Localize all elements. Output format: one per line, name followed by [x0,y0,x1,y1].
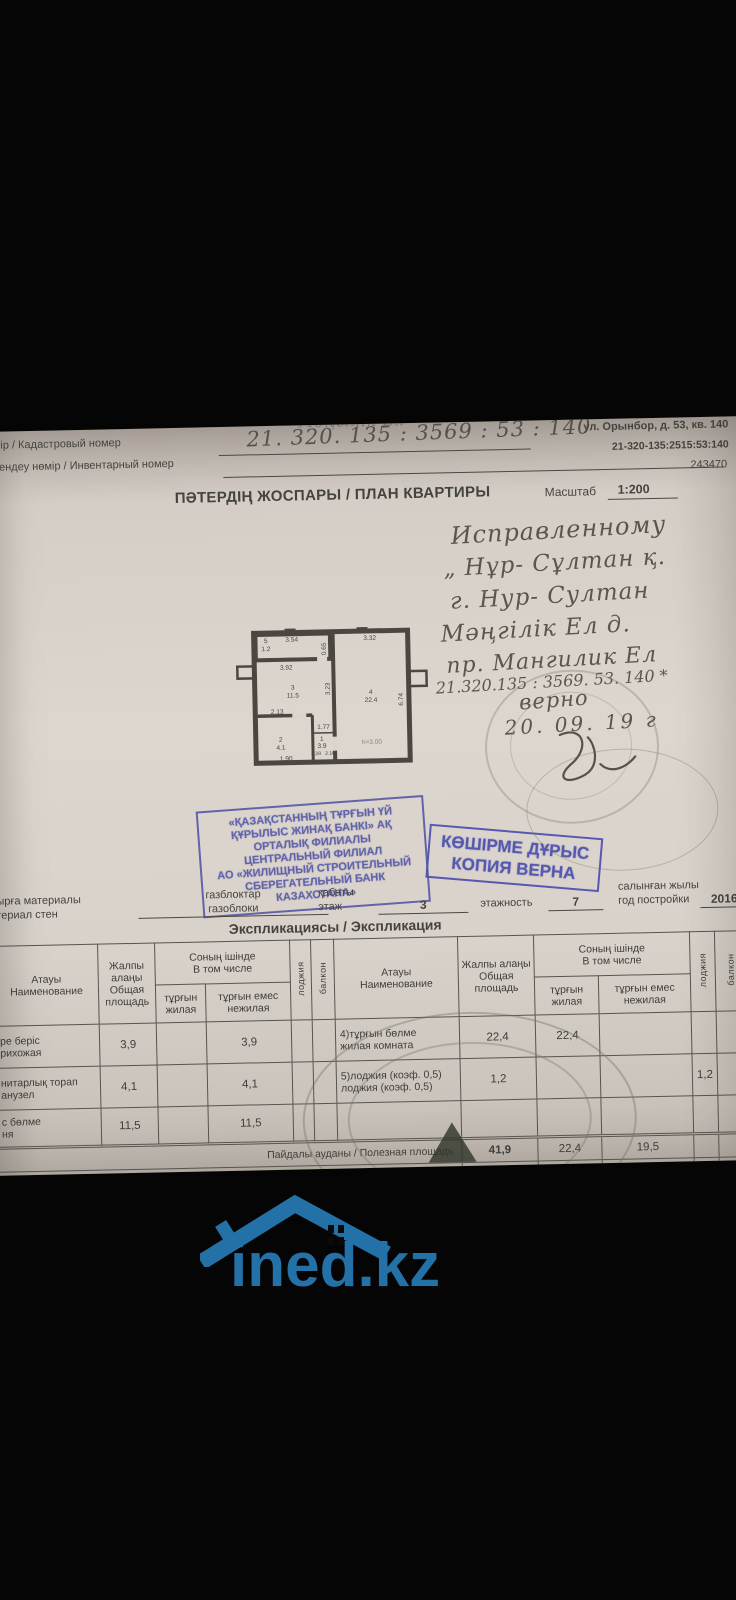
plan-dim: 3.54 [285,636,298,643]
total-living: 22,4 [538,1160,602,1176]
copy-stamp-line-kz: КӨШІРМЕ ДҰРЫС [440,831,591,864]
plan-dim: 3.23 [325,682,332,695]
header-name-kz: Атауы [381,966,411,979]
storeys-total-value: 7 [548,894,603,911]
header-name-kz: Атауы [31,973,61,986]
header-nonliving-kz: тұрғын емес [614,981,674,994]
wall-material-ru: газоблоки [138,900,328,919]
stamp-emblem-triangle [428,1122,477,1163]
header-nonliving-ru: нежилая [624,993,666,1006]
plan-room-area: 3.9 [317,743,327,750]
wall-material-kz: газблоктар [173,887,293,904]
year-built-label-kz: салынған жылы [618,878,699,894]
scale-value: 1:200 [617,482,649,497]
total-area-cell [461,1099,538,1139]
header-loggia: лоджия [696,953,709,988]
storey-label-ru: этаж [318,899,354,914]
plan-dim: 2.13 [271,709,284,716]
balcony-cell [314,1103,338,1141]
balcony-cell [716,1011,736,1054]
wall-material-label-kz: бырға материалы [0,893,81,909]
header-incl-ru: В том числе [193,962,252,975]
living-area-cell [157,1064,208,1107]
room-name-cell [337,1101,462,1142]
plan-room-number: 1 [320,736,324,743]
nonliving-area-cell [600,1054,693,1098]
copy-correct-stamp: КӨШІРМЕ ДҰРЫС КОПИЯ ВЕРНА [425,824,603,892]
storeys-total-number: 7 [572,895,579,909]
useful-area-balcony [719,1133,736,1158]
col-header-nonliving-right: тұрғын емеснежилая [598,974,691,1014]
col-header-name-right: АтауыНаименование [333,937,459,1020]
handwritten-date: 20. 09. 19 г [504,707,659,740]
col-header-balcony-right: балкон [714,931,736,1012]
table-row: с бөлменя 11,5 11,5 [0,1095,736,1149]
room-name-kz: ре беріс [0,1034,40,1047]
address-line: ул. Орынбор, д. 53, кв. 140 [583,418,728,433]
handwritten-line: пр. Мангилик Ел [446,642,658,679]
plan-room-number: 4 [369,689,373,696]
logo-text: ined.kz [230,1230,440,1301]
plan-height-label: h=3.00 [362,739,383,746]
useful-area-living: 22,4 [538,1136,602,1161]
nonliving-area-cell [601,1096,694,1136]
total-nonliving: 19,5 [602,1158,694,1176]
header-total-ru: Общая площадь [105,983,149,1008]
year-built-number: 2016 [711,891,736,906]
wall-material-label: бырға материалы атериал стен [0,893,81,923]
nonliving-area-cell: 3,9 [206,1020,292,1064]
explication-title: Экспликациясы / Экспликация [229,916,442,936]
header-living-ru: жилая [551,995,582,1008]
year-built-field: салынған жылы год постройки [618,878,699,908]
loggia-cell [691,1011,717,1054]
storeys-total-label: этажность [480,896,533,911]
total-label: Қорытынды / Итого [0,1163,463,1176]
faint-stamp-arc [525,747,720,873]
bank-stamp-line: ҚҰРЫЛЫС ЖИНАҚ БАНКІ» АҚ [207,817,415,845]
plan-room-number: 2 [279,737,283,744]
bank-stamp: «ҚАЗАҚСТАННЫҢ ТҰРҒЫН ҮЙ ҚҰРЫЛЫС ЖИНАҚ БА… [196,795,431,918]
plan-dim: 3.32 [363,635,376,642]
col-header-living-right: тұрғынжилая [534,976,599,1015]
useful-area-row: Пайдалы ауданы / Полезная площадь 41,9 2… [0,1133,736,1173]
header-total-kz: Жалпы алаңы [109,959,144,984]
bank-stamp-line: ЦЕНТРАЛЬНЫЙ ФИЛИАЛ [209,843,417,871]
copy-stamp-line-ru: КОПИЯ ВЕРНА [438,852,589,885]
handwritten-line: „ Нұр- Сұлтан қ. [443,544,667,582]
living-area-cell [158,1106,209,1145]
wall-material-label-ru: атериал стен [0,907,81,923]
balcony-cell [718,1095,736,1134]
total-area-cell: 11,5 [101,1107,159,1146]
storey-value: 3 [378,897,468,915]
col-header-balcony-left: балкон [310,939,335,1019]
plan-dim: 6.74 [398,692,405,705]
storey-label-kz: қабаты [318,885,354,900]
header-nonliving-ru: нежилая [227,1002,269,1015]
header-total-kz: Жалпы алаңы [461,957,530,970]
room-name-ru: лоджия (коэф. 0,5) [341,1080,433,1094]
header-loggia: лоджия [294,961,307,996]
col-header-loggia-left: лоджия [290,940,313,1020]
balcony-cell [717,1053,736,1096]
total-loggia: 1,2 [694,1157,719,1176]
wall-material-value: газблоктар газоблоки [173,887,294,919]
header-living-ru: жилая [166,1003,197,1016]
room-name-ru: жилая комната [340,1039,413,1053]
storey-number: 3 [420,898,427,912]
faint-round-stamp-inner [509,690,633,801]
table-row: нитарлық торапанузел 4,1 4,1 5)лоджия (к… [0,1053,736,1111]
explication-table: АтауыНаименование Жалпы алаңыОбщая площа… [0,930,736,1176]
header-nonliving-kz: тұрғын емес [218,989,278,1002]
floor-plan-drawing: 5 1.2 3.54 0.65 3.92 3 11.5 3.23 2.13 2 … [228,609,431,781]
living-area-cell [156,1022,207,1065]
page-title: ПӘТЕРДІҢ ЖОСПАРЫ / ПЛАН КВАРТИРЫ [175,483,491,507]
header-incl-ru: В том числе [582,954,641,967]
plan-dim: 2.10 [325,751,335,757]
plan-dim: 3.92 [280,665,293,672]
printed-cadastral-number: 21-320-135:2515:53:140 [612,438,729,452]
header-balcony: балкон [724,953,736,985]
scale-label: Масштаб [545,484,597,499]
cadastral-number-label: нөмір / Кадастровый номер [0,437,121,452]
balcony-cell [313,1061,337,1103]
faint-scribble: Мәңгілік Ел [298,416,405,431]
nonliving-area-cell: 4,1 [207,1062,293,1106]
inventory-number-label: Түгендеу нөмір / Инвентарный номер [0,458,174,474]
useful-area-total: 41,9 [462,1137,538,1163]
total-area-cell: 3,9 [99,1023,157,1066]
handwritten-line: Исправленному [450,510,667,550]
loggia-cell: 1,2 [692,1053,718,1096]
col-header-total-right: Жалпы алаңыОбщая площадь [457,935,535,1017]
header-name-ru: Наименование [360,977,433,991]
header-incl-kz: Соның ішінде [578,942,645,955]
header-total-ru: Общая площадь [474,969,518,994]
room-name-cell: ре берісрихожая [0,1024,100,1068]
room-name-kz: нитарлық торап [1,1076,78,1090]
balcony-cell [312,1019,336,1061]
nonliving-area-cell: 11,5 [208,1104,294,1144]
room-name-kz: 4)тұрғын бөлме [340,1027,417,1041]
room-name-cell: с бөлменя [0,1108,102,1148]
room-name-ru: ня [2,1128,14,1140]
bank-stamp-line: АО «ЖИЛИЩНЫЙ СТРОИТЕЛЬНЫЙ [210,856,418,884]
useful-area-loggia [694,1133,719,1158]
useful-area-nonliving: 19,5 [602,1134,694,1160]
total-area-cell: 1,2 [460,1057,537,1101]
total-row: Қорытынды / Итого 43,1 22,4 19,5 1,2 [0,1157,736,1176]
room-name-ru: рихожая [0,1046,41,1059]
plan-room-area: 1.2 [261,646,271,653]
year-built-value: 2016 [700,891,736,908]
header-living-kz: тұрғын [164,991,197,1004]
loggia-cell [291,1020,313,1062]
plan-dim: 1.77 [317,724,330,731]
table-row: ре берісрихожая 3,9 3,9 4)тұрғын бөлмежи… [0,1011,736,1069]
faint-round-stamp [483,668,660,826]
header-balcony: балкон [316,962,329,994]
year-built-label-ru: год постройки [618,892,699,908]
plan-dim: 2.28 [311,751,321,757]
living-area-cell [537,1098,602,1137]
col-header-loggia-right: лоджия [689,931,716,1012]
photo-of-document: нөмір / Кадастровый номер Түгендеу нөмір… [0,0,736,1600]
bank-stamp-line: «ҚАЗАҚСТАННЫҢ ТҰРҒЫН ҮЙ [206,804,414,832]
total-area-cell: 4,1 [100,1065,158,1108]
living-area-cell [536,1056,601,1099]
room-name-kz: 5)лоджия (коэф. 0,5) [341,1068,442,1082]
plan-room-area: 11.5 [287,692,300,699]
handwritten-line: 21.320.135 : 3569. 53. 140 * [435,666,668,698]
living-area-cell: 22,4 [535,1014,600,1057]
handwritten-verified: верно [518,686,589,715]
floor-plan-document: нөмір / Кадастровый номер Түгендеу нөмір… [0,416,736,1176]
header-incl-kz: Соның ішінде [189,950,256,963]
large-round-stamp [301,1008,639,1175]
total-total: 43,1 [462,1161,538,1176]
total-area-cell: 22,4 [459,1015,536,1059]
room-name-cell: 5)лоджия (коэф. 0,5)лоджия (коэф. 0,5) [336,1059,461,1104]
loggia-cell [293,1104,315,1142]
col-header-including-right: Соның ішіндеВ том числе [533,932,690,977]
col-header-including-left: Соның ішіндеВ том числе [155,940,291,985]
plan-room-area: 4.1 [276,745,286,752]
plan-dim: 1.90 [280,756,293,763]
room-name-kz: с бөлме [2,1116,41,1129]
loggia-cell [292,1062,314,1104]
header-name-ru: Наименование [10,985,83,999]
plan-dim: 0.65 [321,642,328,655]
plan-room-area: 22.4 [365,697,378,704]
handwritten-line: Мәңгілік Ел д. [440,611,631,648]
plan-room-number: 5 [264,638,268,645]
col-header-nonliving-left: тұрғын емеснежилая [205,982,291,1022]
nonliving-area-cell [599,1012,692,1056]
col-header-living-left: тұрғынжилая [155,984,206,1023]
watermark-logo: ined.kz [200,1192,540,1312]
large-round-stamp-inner [346,1039,593,1176]
storey-field: қабаты этаж [318,885,354,914]
handwritten-cadastral-number: 21. 320. 135 : 3569 : 53 : 140 [246,416,592,451]
plan-room-number: 3 [291,685,295,692]
signature [539,718,650,790]
handwritten-line: г. Нур- Султан [449,578,650,615]
bank-stamp-line: ОРТАЛЫҚ ФИЛИАЛЫ [208,830,416,858]
header-living-kz: тұрғын [550,983,583,996]
room-name-ru: анузел [1,1089,34,1102]
useful-area-label: Пайдалы ауданы / Полезная площадь [0,1139,462,1173]
room-name-cell: нитарлық торапанузел [0,1066,101,1110]
loggia-cell [693,1095,719,1134]
col-header-total-left: Жалпы алаңыОбщая площадь [98,943,157,1024]
bank-stamp-line: СБЕРЕГАТЕЛЬНЫЙ БАНК КАЗАХСТАНА» [211,868,420,909]
room-name-cell: 4)тұрғын бөлмежилая комната [335,1017,460,1062]
total-balcony [719,1157,736,1176]
document-code: 243470 [690,458,727,471]
col-header-name-left: АтауыНаименование [0,944,99,1026]
